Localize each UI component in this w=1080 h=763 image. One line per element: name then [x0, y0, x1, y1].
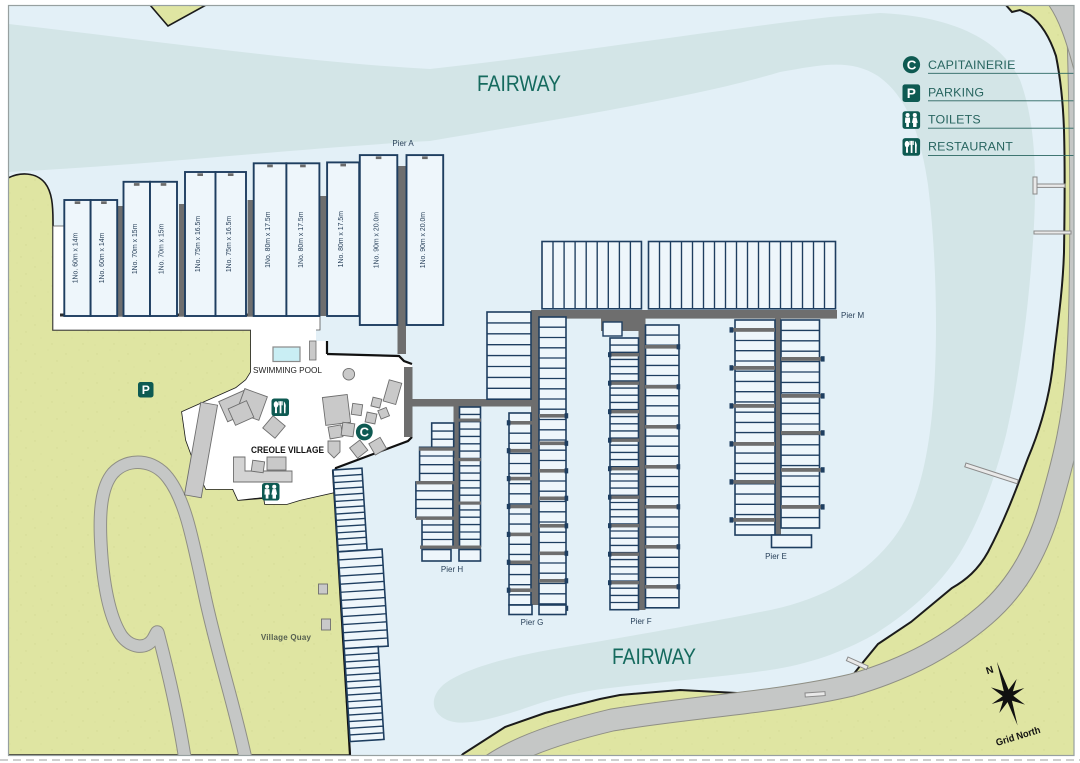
- svg-text:PARKING: PARKING: [928, 86, 984, 100]
- svg-text:FAIRWAY: FAIRWAY: [477, 71, 561, 96]
- svg-text:1No. 80m x 17.5m: 1No. 80m x 17.5m: [265, 211, 272, 268]
- svg-text:Pier G: Pier G: [521, 618, 544, 627]
- svg-text:1No. 90m x 20.0m: 1No. 90m x 20.0m: [374, 212, 381, 269]
- svg-text:Pier H: Pier H: [441, 565, 463, 574]
- svg-text:1No. 60m x 14m: 1No. 60m x 14m: [73, 232, 80, 283]
- svg-text:1No. 80m x 17.5m: 1No. 80m x 17.5m: [338, 211, 345, 268]
- svg-text:RESTAURANT: RESTAURANT: [928, 139, 1013, 153]
- svg-text:1No. 60m x 14m: 1No. 60m x 14m: [99, 232, 106, 283]
- svg-text:Pier E: Pier E: [765, 552, 787, 561]
- svg-text:Pier M: Pier M: [841, 311, 864, 320]
- svg-text:Pier A: Pier A: [392, 139, 414, 148]
- svg-text:C: C: [907, 57, 917, 72]
- svg-text:1No. 80m x 17.5m: 1No. 80m x 17.5m: [298, 211, 305, 268]
- svg-text:1No. 70m x 15m: 1No. 70m x 15m: [159, 223, 166, 274]
- svg-text:P: P: [907, 86, 916, 101]
- svg-text:1No. 75m x 16.5m: 1No. 75m x 16.5m: [226, 216, 233, 273]
- svg-text:C: C: [360, 425, 370, 440]
- svg-text:1No. 70m x 15m: 1No. 70m x 15m: [132, 223, 139, 274]
- svg-text:FAIRWAY: FAIRWAY: [612, 644, 696, 669]
- svg-text:1No. 75m x 16.5m: 1No. 75m x 16.5m: [195, 216, 202, 273]
- svg-text:P: P: [142, 383, 150, 397]
- svg-text:SWIMMING POOL: SWIMMING POOL: [253, 365, 322, 375]
- svg-text:Pier F: Pier F: [630, 617, 651, 626]
- svg-text:CREOLE VILLAGE: CREOLE VILLAGE: [251, 445, 324, 455]
- svg-text:CAPITAINERIE: CAPITAINERIE: [928, 58, 1016, 72]
- svg-text:Village Quay: Village Quay: [261, 633, 312, 642]
- svg-text:1No. 90m x 20.0m: 1No. 90m x 20.0m: [420, 212, 427, 269]
- svg-text:TOILETS: TOILETS: [928, 113, 981, 127]
